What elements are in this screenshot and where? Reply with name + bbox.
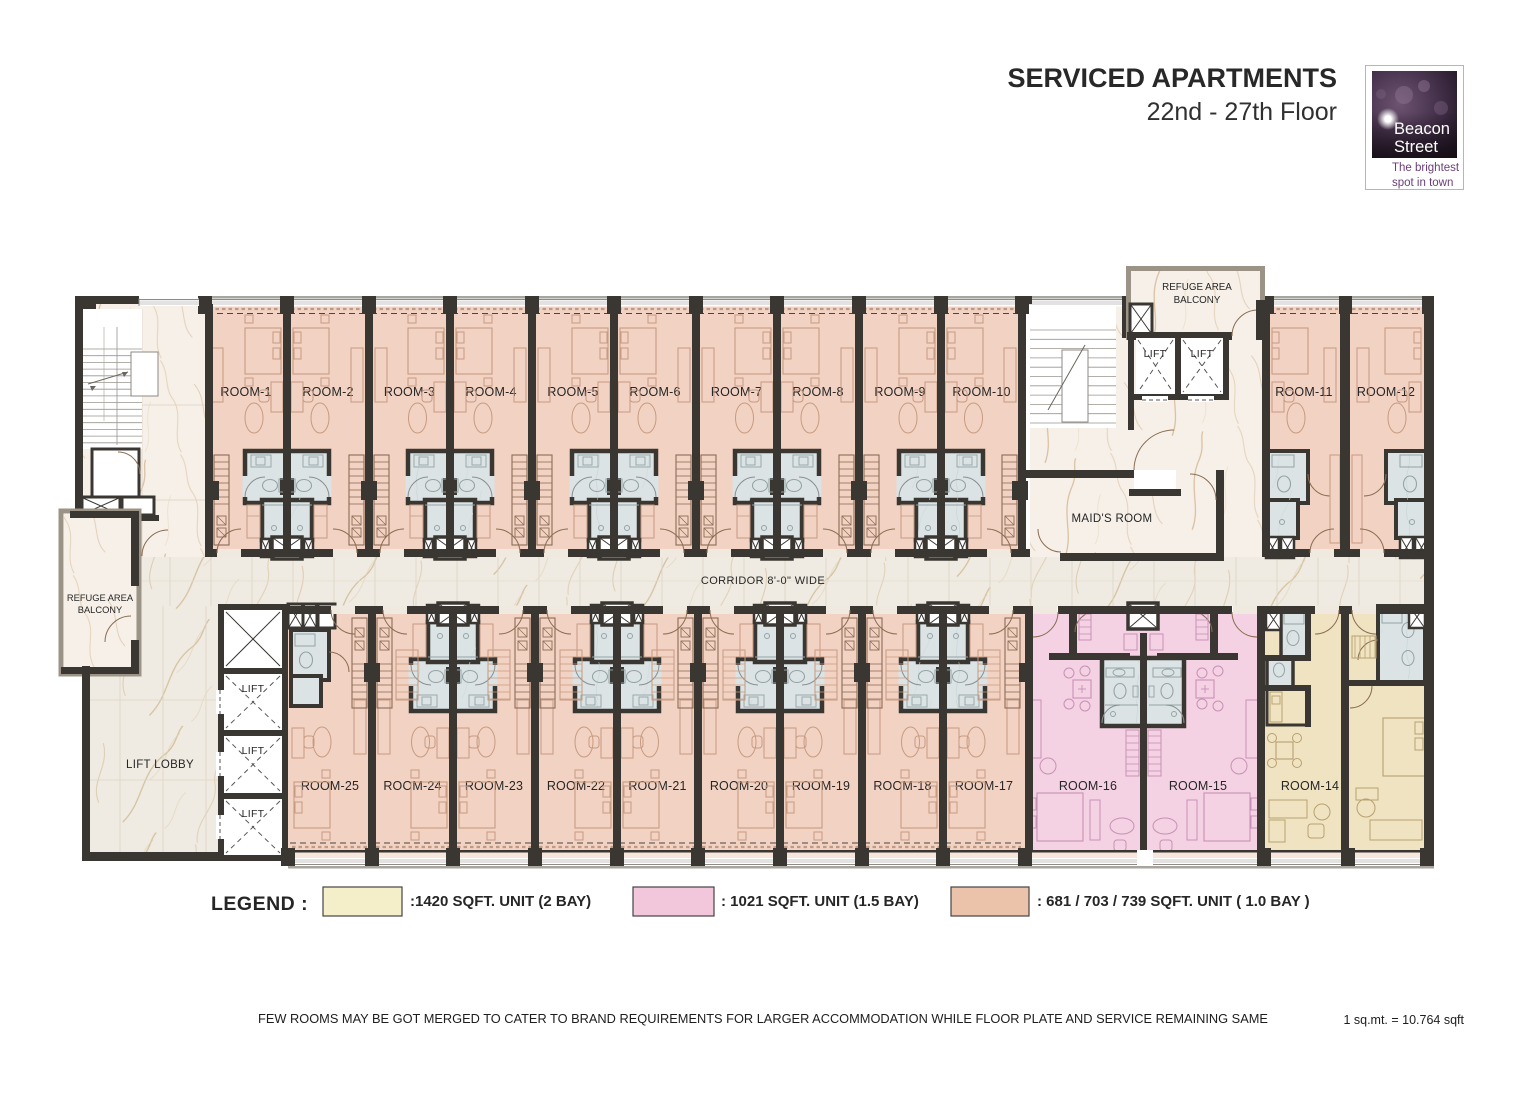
svg-text:MAID'S ROOM: MAID'S ROOM <box>1072 513 1153 525</box>
svg-text:LEGEND :: LEGEND : <box>211 893 308 915</box>
svg-text:LIFT: LIFT <box>242 745 265 757</box>
svg-text:ROOM-1: ROOM-1 <box>220 385 271 399</box>
svg-text:LIFT: LIFT <box>242 683 265 695</box>
svg-text:LIFT LOBBY: LIFT LOBBY <box>126 759 194 771</box>
svg-text:ROOM-23: ROOM-23 <box>465 779 523 793</box>
svg-text:REFUGE AREA: REFUGE AREA <box>1162 282 1232 293</box>
svg-text:The brightest: The brightest <box>1392 162 1460 174</box>
svg-text:spot in town: spot in town <box>1392 177 1453 189</box>
svg-text:REFUGE AREA: REFUGE AREA <box>67 593 134 603</box>
svg-text:ROOM-24: ROOM-24 <box>383 779 441 793</box>
svg-text:: 1021 SQFT. UNIT (1.5 BAY): : 1021 SQFT. UNIT (1.5 BAY) <box>721 893 919 910</box>
svg-text:ROOM-7: ROOM-7 <box>711 385 762 399</box>
svg-text:ROOM-18: ROOM-18 <box>873 779 931 793</box>
svg-text:ROOM-17: ROOM-17 <box>955 779 1013 793</box>
svg-text:ROOM-8: ROOM-8 <box>792 385 843 399</box>
svg-text:: 681 / 703 / 739 SQFT. UNIT (: : 681 / 703 / 739 SQFT. UNIT ( 1.0 BAY ) <box>1037 893 1310 910</box>
svg-text:FEW ROOMS MAY BE GOT MERGED TO: FEW ROOMS MAY BE GOT MERGED TO CATER TO … <box>258 1011 1268 1026</box>
svg-text:ROOM-14: ROOM-14 <box>1281 779 1339 793</box>
svg-text:1 sq.mt. = 10.764 sqft: 1 sq.mt. = 10.764 sqft <box>1343 1013 1464 1027</box>
svg-text:ROOM-2: ROOM-2 <box>302 385 353 399</box>
svg-text:ROOM-15: ROOM-15 <box>1169 779 1227 793</box>
svg-text:Street: Street <box>1394 138 1438 156</box>
svg-text:ROOM-20: ROOM-20 <box>710 779 768 793</box>
svg-text:ROOM-4: ROOM-4 <box>465 385 516 399</box>
svg-text:SERVICED APARTMENTS: SERVICED APARTMENTS <box>1007 63 1337 93</box>
svg-text::1420 SQFT. UNIT (2 BAY): :1420 SQFT. UNIT (2 BAY) <box>410 893 591 910</box>
svg-text:ROOM-16: ROOM-16 <box>1059 779 1117 793</box>
svg-text:ROOM-10: ROOM-10 <box>952 385 1010 399</box>
svg-text:LIFT: LIFT <box>1191 348 1214 360</box>
svg-text:BALCONY: BALCONY <box>78 605 122 615</box>
svg-text:LIFT: LIFT <box>242 808 265 820</box>
svg-text:22nd - 27th Floor: 22nd - 27th Floor <box>1147 98 1337 126</box>
svg-text:CORRIDOR 8'-0" WIDE: CORRIDOR 8'-0" WIDE <box>701 575 825 587</box>
svg-text:Beacon: Beacon <box>1394 120 1450 138</box>
svg-text:ROOM-5: ROOM-5 <box>547 385 598 399</box>
svg-text:BALCONY: BALCONY <box>1174 295 1221 306</box>
svg-text:ROOM-22: ROOM-22 <box>547 779 605 793</box>
svg-text:ROOM-9: ROOM-9 <box>874 385 925 399</box>
svg-text:ROOM-21: ROOM-21 <box>628 779 686 793</box>
svg-text:ROOM-6: ROOM-6 <box>629 385 680 399</box>
svg-text:LIFT: LIFT <box>1144 348 1167 360</box>
svg-text:ROOM-19: ROOM-19 <box>792 779 850 793</box>
svg-text:ROOM-3: ROOM-3 <box>384 385 435 399</box>
